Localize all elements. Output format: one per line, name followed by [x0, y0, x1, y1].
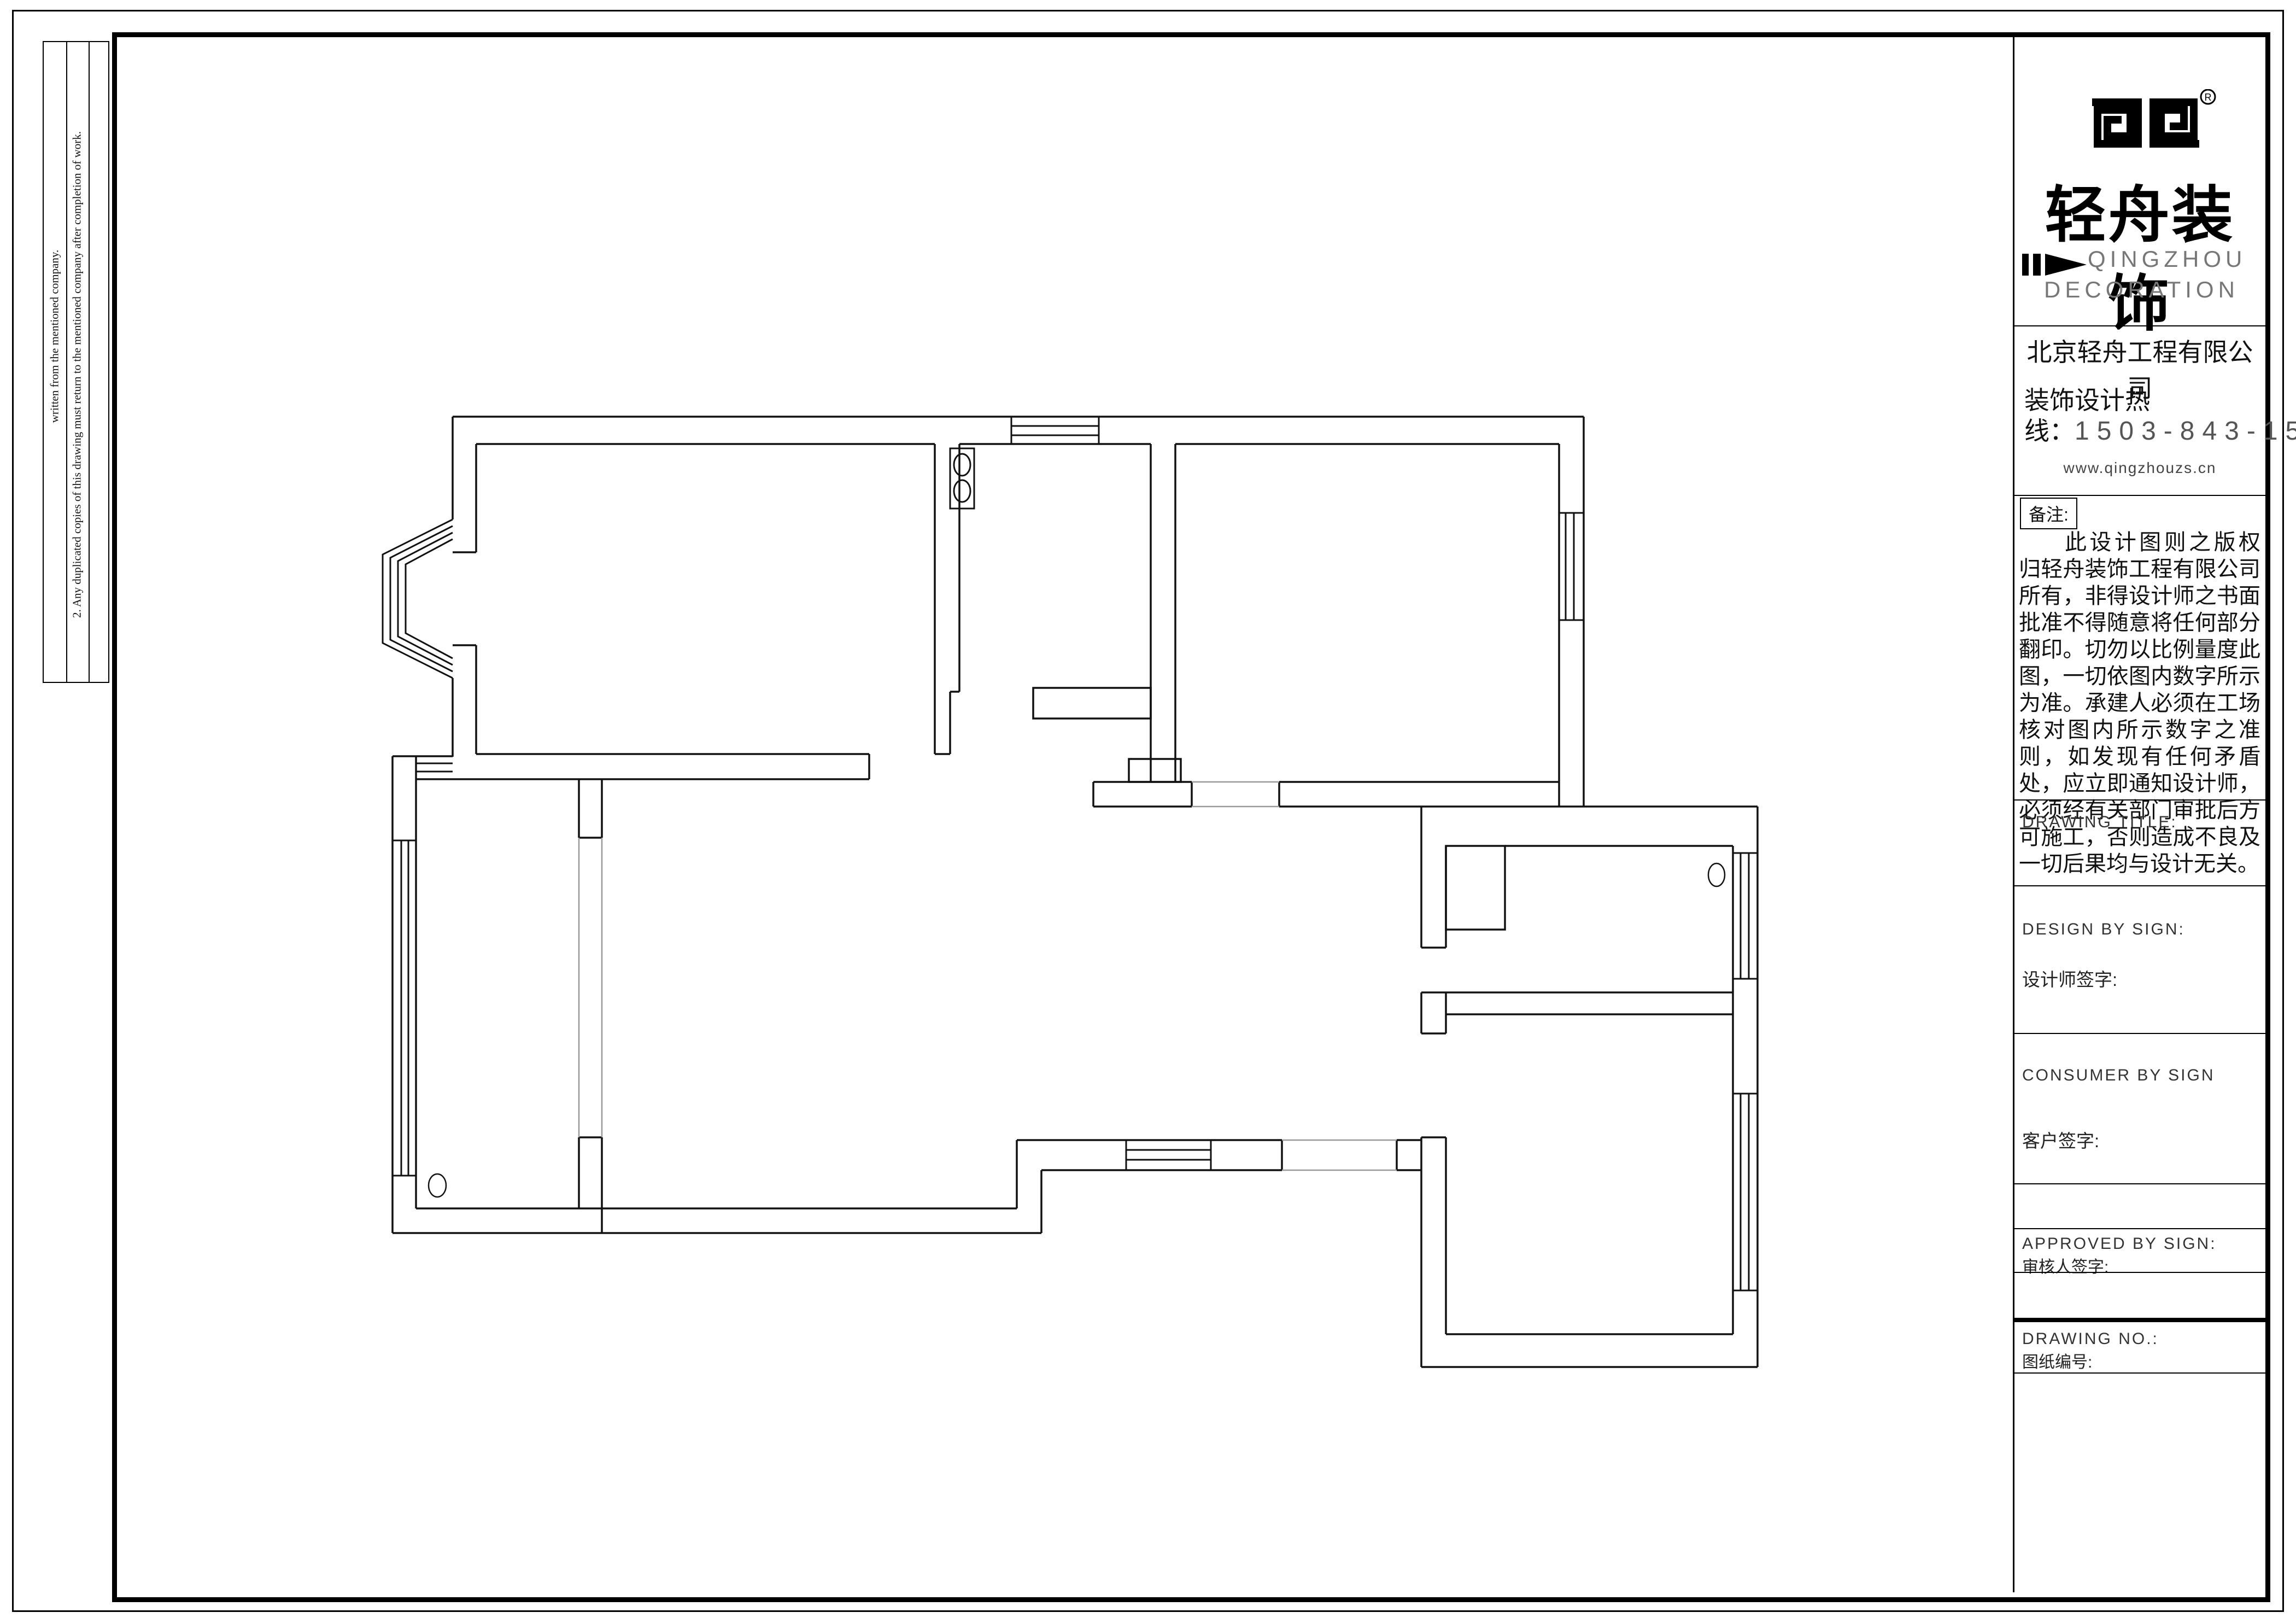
bay-window-icon: [383, 519, 453, 678]
approved-by-label: APPROVED BY SIGN:: [2022, 1235, 2217, 1253]
website-url: www.qingzhouzs.cn: [2014, 459, 2265, 477]
tb-divider: [2014, 1033, 2265, 1034]
tb-divider: [2014, 885, 2265, 886]
brand-name-en: QINGZHOU DECORATION: [2022, 246, 2246, 303]
consumer-by-label: CONSUMER BY SIGN: [2022, 1066, 2215, 1085]
title-block: R 轻舟装饰 QINGZHOU DECORATION 北京轻舟工程有限公司 装饰…: [2013, 37, 2265, 1592]
consumer-sign-label: 客户签字:: [2022, 1126, 2099, 1153]
drawing-sheet: written from the mentioned company. 2. A…: [0, 0, 2296, 1624]
tb-divider: [2014, 1228, 2265, 1229]
hotline-line2: 线：1503-843-1503: [2024, 411, 2296, 447]
qingzhou-logo-icon: R: [2086, 89, 2217, 157]
floor-drain-icon: [429, 863, 1725, 1197]
tb-divider: [2014, 799, 2265, 801]
registered-mark: R: [2205, 92, 2212, 103]
floor-plan: [0, 0, 2296, 1624]
approver-sign-label: 审核人签字:: [2022, 1253, 2108, 1277]
hotline-number: 1503-843-1503: [2075, 417, 2296, 446]
tb-divider-thick: [2014, 1318, 2265, 1322]
window-icon: [393, 417, 1758, 1290]
design-by-label: DESIGN BY SIGN:: [2022, 920, 2185, 939]
drawing-no-label: DRAWING NO.:: [2022, 1330, 2159, 1348]
tb-divider: [2014, 325, 2265, 326]
opening-threshold: [579, 782, 1397, 1170]
drawing-title-label: DRAWING TITLE:: [2022, 813, 2177, 832]
hotline-prefix: 线：: [2024, 417, 2075, 445]
gas-stove-icon: [950, 448, 974, 509]
brand-en-line2: DECORATION: [2044, 277, 2246, 303]
remarks-label: 备注:: [2020, 498, 2077, 529]
tb-divider: [2014, 495, 2265, 496]
tb-divider: [2014, 1272, 2265, 1273]
walls: [393, 417, 1758, 1367]
wall-pier: [1129, 759, 1181, 782]
brand-en-line1: QINGZHOU: [2088, 246, 2246, 272]
tb-divider: [2014, 1372, 2265, 1374]
designer-sign-label: 设计师签字:: [2022, 965, 2117, 991]
kitchen-counter-icon: [1033, 688, 1151, 718]
drawing-no-cn-label: 图纸编号:: [2022, 1348, 2092, 1372]
tb-divider: [2014, 1183, 2265, 1184]
duct-shaft-icon: [1446, 846, 1505, 930]
flag-icon: [2022, 253, 2088, 277]
